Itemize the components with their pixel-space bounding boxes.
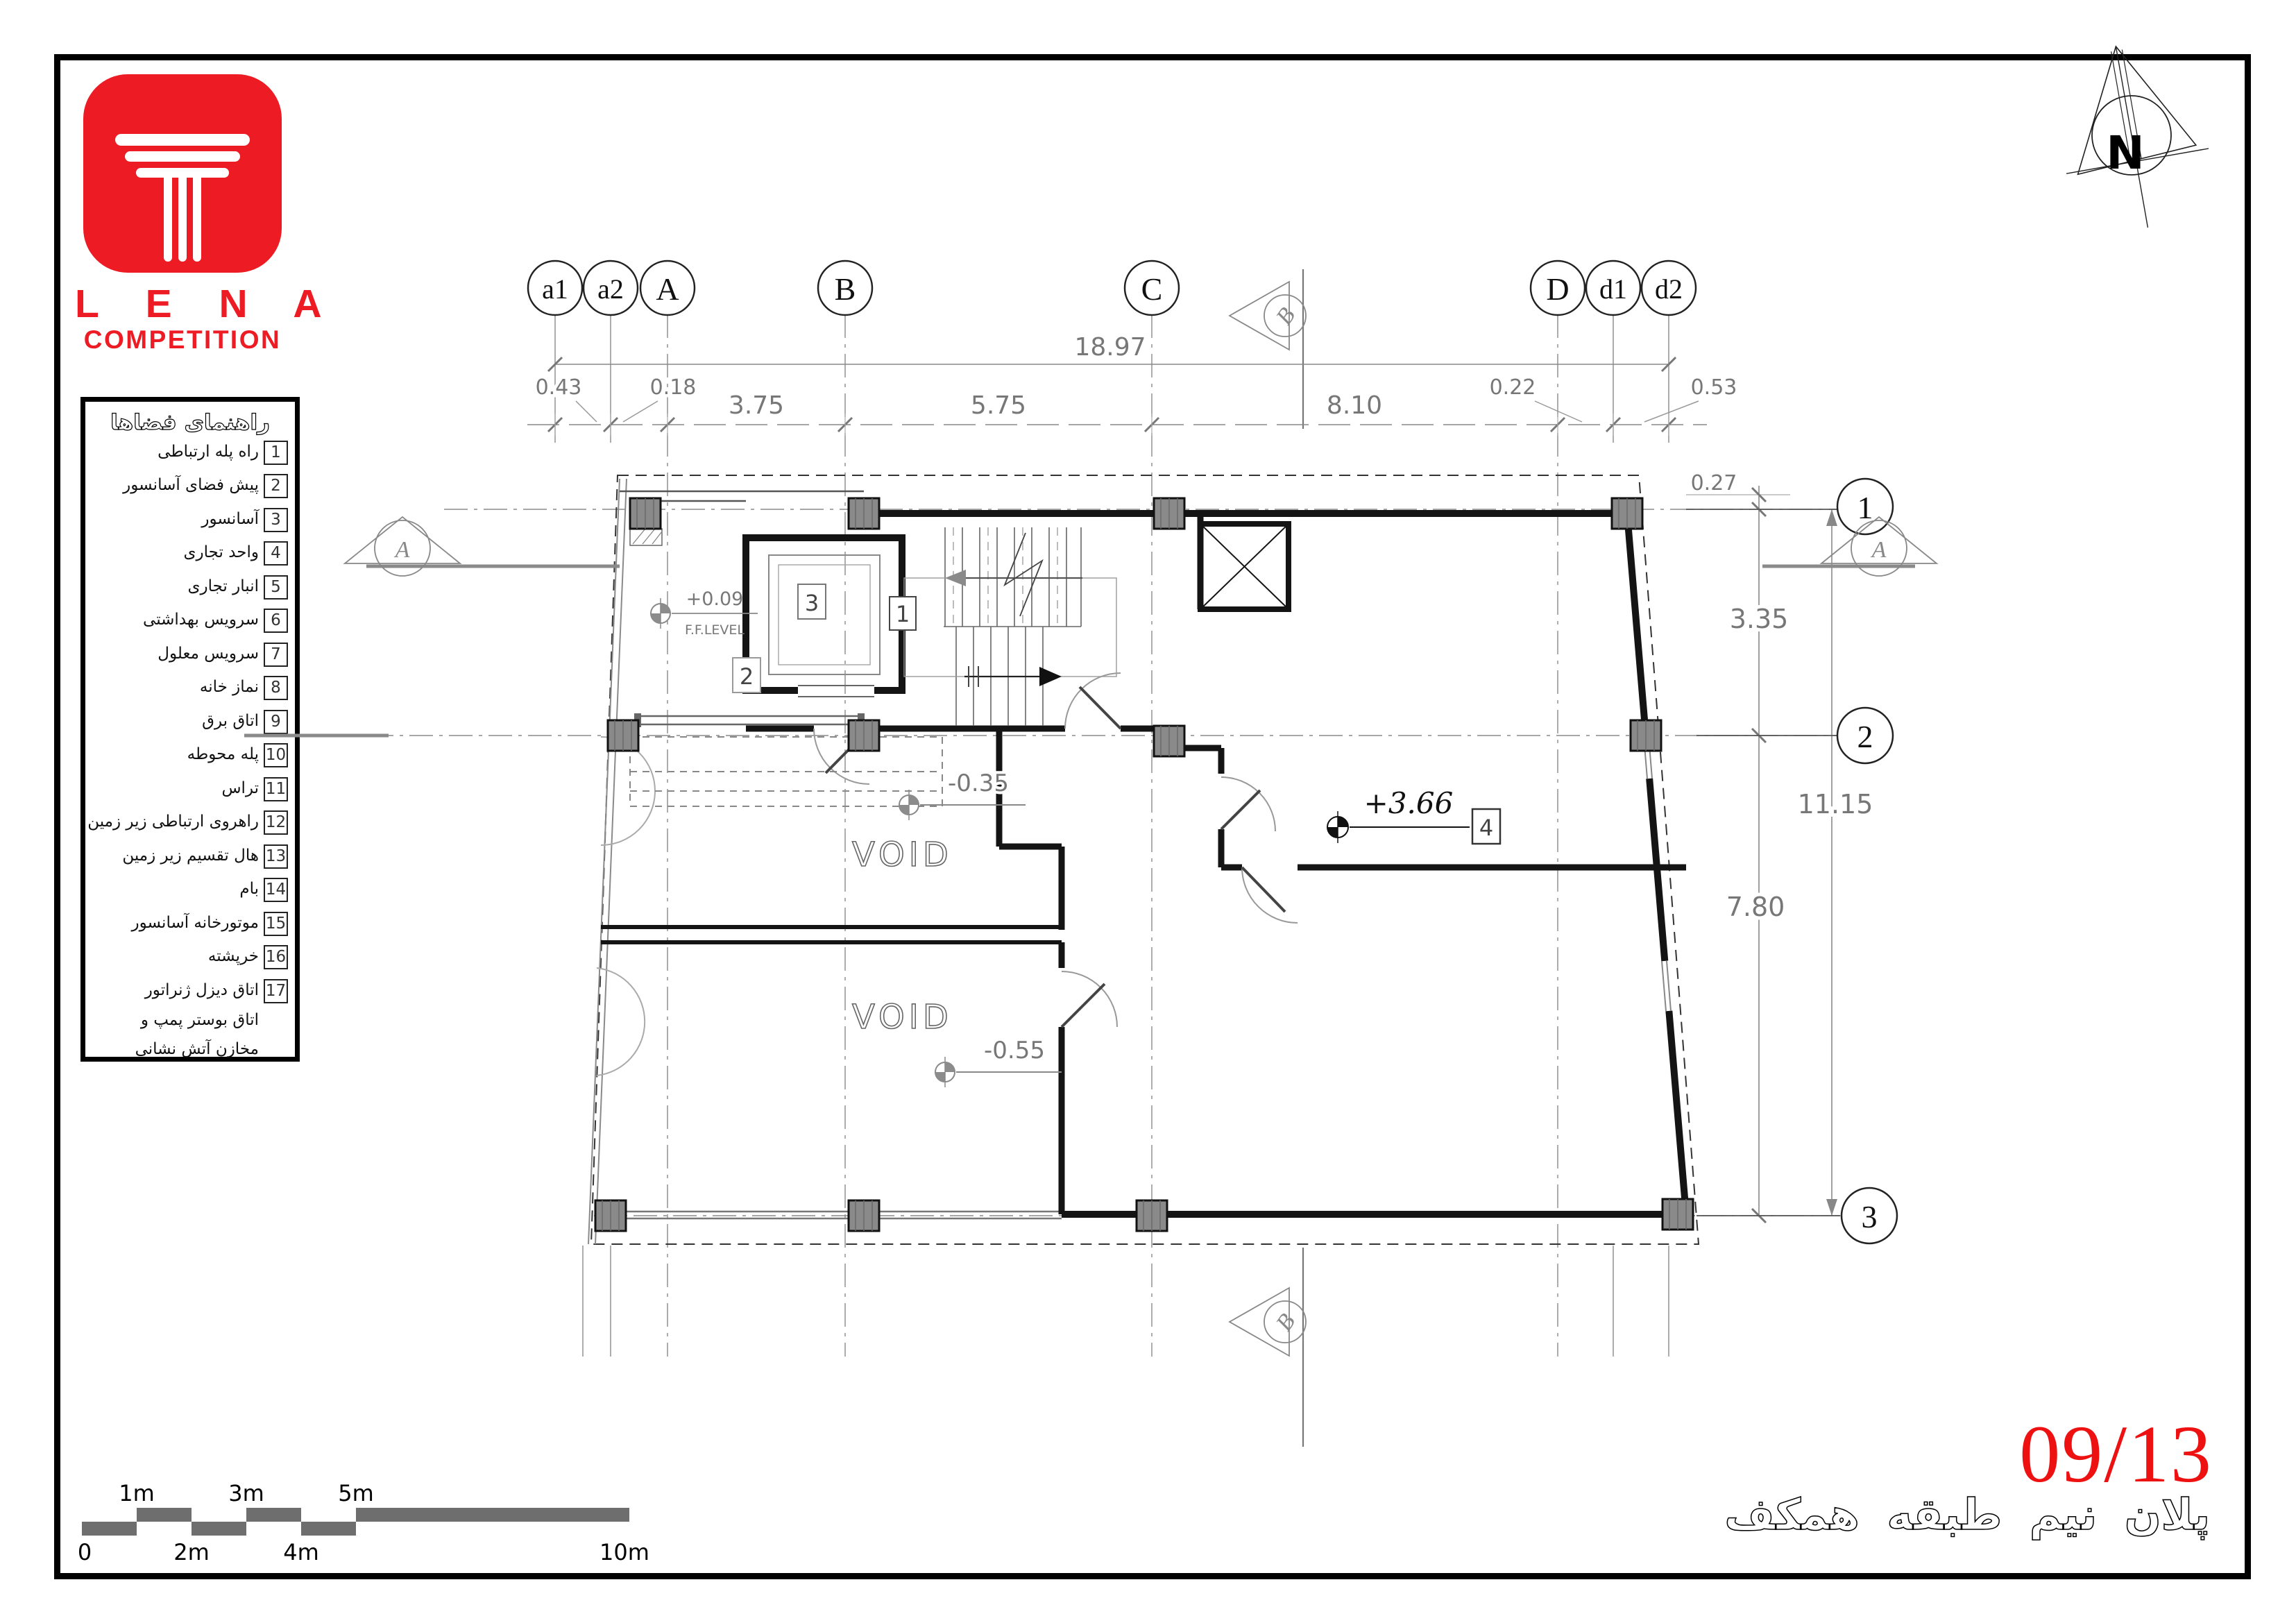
dim-seg-cd: 8.10: [1327, 391, 1382, 420]
property-boundary: [588, 475, 1699, 1244]
grid-bubble-2: 2: [1857, 719, 1873, 754]
dim-offset-top: 0.27: [1691, 471, 1737, 495]
void-labels: VOID VOID: [852, 835, 953, 1037]
section-markers: A A B B: [345, 282, 1937, 1356]
dimensions-top: 18.97 3.75 5.75 8.10 0.43 0.18 0.22 0.53: [527, 333, 1737, 436]
dim-D-d1: 0.22: [1490, 375, 1536, 400]
scale-label-10m: 10m: [599, 1539, 649, 1565]
grid-bubble-D: D: [1546, 271, 1569, 307]
grid-bubble-d2: d2: [1655, 273, 1683, 305]
room-tag-2: 2: [740, 663, 754, 690]
level-markers: +0.09 F.F.LEVEL -0.35 -0.55 +3.66: [651, 588, 1470, 1087]
grid-bubble-A: A: [656, 271, 679, 307]
scale-label-1m: 1m: [119, 1480, 155, 1506]
scale-label-4m: 4m: [283, 1539, 319, 1565]
grid-bubbles-top: a1 a2 A B C D d1 d2: [528, 261, 1696, 315]
section-b-bottom: B: [1271, 1309, 1300, 1336]
grid-bubble-B: B: [835, 271, 856, 307]
section-b-top: B: [1271, 303, 1300, 330]
dimensions-right: 0.27 3.35 7.80 11.15: [1686, 471, 1873, 1223]
section-a-left: A: [394, 537, 410, 563]
void-lower-level: -0.55: [984, 1037, 1045, 1064]
dim-total: 18.97: [1074, 333, 1146, 362]
ff-level-label: F.F.LEVEL: [685, 622, 745, 638]
sheet-caption: پلان نیم طبقه همکف: [1724, 1489, 2210, 1540]
room-tag-3: 3: [805, 590, 819, 616]
north-label: N: [2106, 126, 2144, 180]
scale-label-0: 0: [78, 1539, 92, 1565]
dim-total-v: 11.15: [1798, 789, 1873, 819]
scale-label-2m: 2m: [173, 1539, 210, 1565]
void-upper-level: -0.35: [948, 770, 1009, 797]
stair: [904, 527, 1116, 726]
dim-row12: 3.35: [1730, 604, 1789, 634]
void-text-lower: VOID: [852, 998, 953, 1037]
grid-bubble-a2: a2: [597, 273, 624, 305]
dim-d1-d2: 0.53: [1691, 375, 1737, 400]
grid-lines: [244, 269, 1840, 1447]
dim-seg-ab: 3.75: [729, 391, 784, 420]
room-tag-4: 4: [1479, 815, 1493, 841]
sheet-number: 09/13: [2019, 1407, 2213, 1502]
north-arrow: N: [2046, 34, 2220, 240]
grid-bubble-d1: d1: [1599, 273, 1627, 305]
walls: [595, 491, 1686, 1218]
section-a-right: A: [1871, 537, 1887, 563]
room-tag-1: 1: [896, 601, 910, 627]
void-text-upper: VOID: [852, 835, 953, 874]
grid-bubble-C: C: [1141, 271, 1163, 307]
grid-bubble-3: 3: [1862, 1199, 1878, 1234]
floor-plan-drawing: 1 2 3 4 +0.09 F.F.LEVEL -0.35 -0.55 +3.6…: [0, 0, 2296, 1623]
scale-label-3m: 3m: [228, 1480, 264, 1506]
grid-bubbles-right: 1 2 3: [1686, 479, 1897, 1243]
scale-label-5m: 5m: [338, 1480, 374, 1506]
drawing-sheet: L E N A COMPETITION راهنمای فضاها 1راه پ…: [0, 0, 2296, 1623]
terrace-outline: [630, 737, 942, 806]
room4-level: +3.66: [1364, 786, 1454, 820]
ff-level-value: +0.09: [686, 588, 744, 610]
grid-bubble-1: 1: [1857, 490, 1873, 525]
grid-bubble-a1: a1: [542, 273, 568, 305]
dim-a2-A: 0.18: [650, 375, 697, 400]
dim-a1-a2: 0.43: [536, 375, 582, 400]
dim-row23: 7.80: [1726, 892, 1785, 922]
dim-seg-bc: 5.75: [971, 391, 1026, 420]
